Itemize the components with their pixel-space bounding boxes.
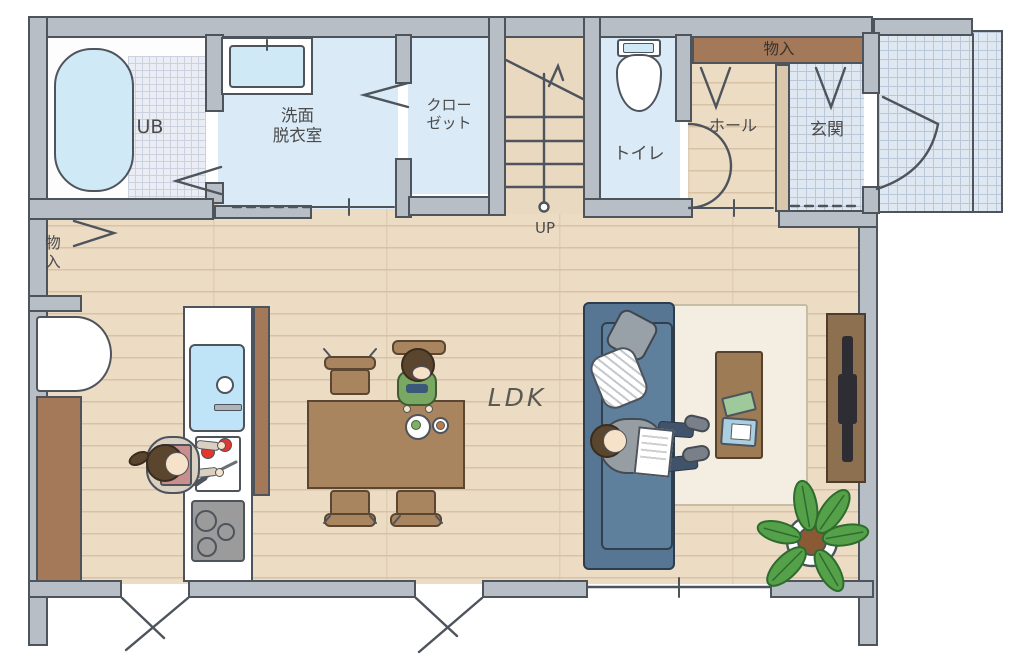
dining-table	[307, 400, 465, 489]
dad-face	[603, 429, 627, 453]
wall-bottom-4	[770, 580, 874, 598]
kitchen-counter-back	[253, 306, 270, 496]
wall-ub-bottom	[28, 198, 214, 220]
washroom-sink-basin	[229, 45, 305, 88]
room-label-ldk: LDK	[484, 383, 550, 413]
plate-food	[411, 420, 421, 430]
chair-top-left-seat	[330, 369, 370, 395]
room-label-washroom: 洗面 脱衣室	[240, 106, 355, 146]
room-label-closet: クロー ゼット	[412, 96, 486, 132]
stairs-floor	[504, 34, 586, 214]
cup-coffee	[436, 421, 445, 430]
wall-washroom-ledge	[214, 205, 312, 219]
tall-cabinet	[36, 396, 82, 582]
room-label-entrance: 玄関	[798, 120, 856, 140]
floor-plan: UB 洗面 脱衣室 クロー ゼット トイレ ホール 玄関 物入 物 入 LDK …	[0, 0, 1024, 664]
toilet-tank-lid	[623, 43, 654, 53]
stove	[191, 500, 245, 562]
room-label-hall-storage: 物入	[737, 40, 821, 59]
wall-toilet-right	[675, 34, 692, 122]
stairs-up-label: UP	[529, 219, 561, 237]
dad-newspaper-text	[640, 433, 669, 466]
wall-ldk-storage-nib	[28, 295, 82, 312]
hall-floor	[688, 60, 780, 212]
mom-hand-1	[217, 441, 226, 450]
wall-stairs-right	[583, 16, 601, 216]
boy-hand-2	[425, 405, 433, 413]
wall-bottom-2	[188, 580, 416, 598]
wall-stairs-left	[488, 16, 506, 216]
wall-hall-entrance	[775, 64, 790, 212]
porch-floor	[877, 30, 1003, 213]
wall-toilet-bottom	[583, 198, 693, 218]
wall-top	[28, 16, 873, 38]
wall-top-right	[873, 18, 973, 36]
chair-bottom-left-back	[324, 513, 376, 527]
boy-face	[412, 366, 431, 380]
room-label-ub: UB	[120, 116, 180, 139]
chair-top-left-back	[324, 356, 376, 370]
room-label-hall: ホール	[696, 116, 770, 135]
wall-closet-bottom	[408, 196, 492, 216]
room-label-toilet: トイレ	[604, 144, 674, 164]
window-left-swing	[122, 598, 188, 650]
wall-entrance-right-bottom	[862, 186, 880, 214]
room-label-ldk-storage: 物 入	[38, 234, 68, 271]
kitchen-faucet	[216, 376, 234, 394]
refrigerator	[36, 316, 112, 392]
wall-bottom-1	[28, 580, 122, 598]
kitchen-sink-drainer	[214, 404, 242, 411]
tablet-screen	[730, 423, 751, 440]
boy-hand-1	[403, 405, 411, 413]
tv-stand	[838, 374, 857, 424]
wall-entrance-right-top	[862, 32, 880, 94]
window-mid-swing	[416, 598, 482, 652]
mom-hand-2	[215, 468, 224, 477]
wall-bottom-3	[482, 580, 588, 598]
boy-jeans	[406, 384, 428, 393]
chair-bottom-right-back	[390, 513, 442, 527]
mom-face	[165, 452, 189, 476]
wall-closet-left-top	[395, 34, 412, 84]
